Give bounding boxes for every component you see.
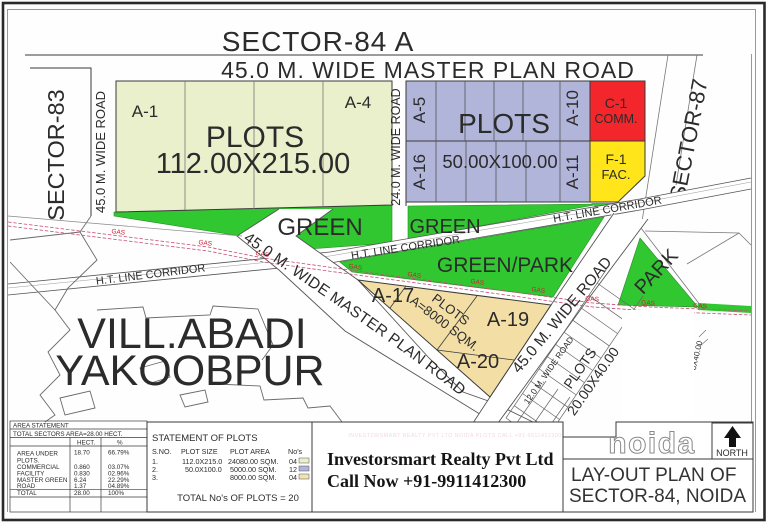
svg-text:A-11: A-11 [563, 155, 582, 190]
svg-text:INVESTORSMART REALTY PVT LTD: INVESTORSMART REALTY PVT LTD NOIDA PLOTS… [348, 433, 561, 439]
svg-text:A-4: A-4 [345, 93, 371, 112]
svg-text:SECTOR-84, NOIDA: SECTOR-84, NOIDA [569, 486, 746, 507]
svg-text:C-1: C-1 [605, 95, 628, 111]
svg-text:PLOTS: PLOTS [458, 108, 550, 139]
svg-text:FAC.: FAC. [602, 167, 631, 182]
svg-text:NORTH: NORTH [716, 448, 748, 458]
svg-text:A-10: A-10 [563, 90, 582, 126]
svg-text:8000.00 SQM.: 8000.00 SQM. [230, 473, 276, 482]
svg-text:45.0 M. WIDE ROAD: 45.0 M. WIDE ROAD [93, 91, 108, 213]
svg-text:PLOT AREA: PLOT AREA [230, 447, 270, 456]
svg-text:04.89%: 04.89% [108, 483, 130, 490]
svg-text:GREEN: GREEN [277, 214, 362, 241]
svg-text:A-1: A-1 [132, 102, 158, 121]
svg-text:100%: 100% [108, 490, 125, 497]
svg-text:F-1: F-1 [606, 151, 627, 167]
svg-text:24.0 M. WIDE ROAD: 24.0 M. WIDE ROAD [389, 88, 403, 205]
svg-text:04: 04 [289, 473, 297, 482]
svg-text:noida: noida [608, 427, 696, 460]
svg-text:66.79%: 66.79% [108, 450, 130, 457]
svg-text:TOTAL SECTORS AREA=28.00 HECT.: TOTAL SECTORS AREA=28.00 HECT. [13, 431, 123, 438]
svg-text:S.NO.: S.NO. [152, 447, 172, 456]
svg-text:TOTAL: TOTAL [17, 490, 37, 497]
svg-text:HECT.: HECT. [77, 440, 95, 447]
svg-text:YAKOOBPUR: YAKOOBPUR [55, 347, 324, 395]
svg-text:A-20: A-20 [457, 351, 499, 373]
svg-text:GAS: GAS [641, 300, 656, 308]
svg-text:%: % [117, 440, 123, 447]
svg-text:50.00X100.00: 50.00X100.00 [442, 151, 557, 172]
svg-text:GREEN/PARK: GREEN/PARK [437, 254, 573, 277]
svg-text:3.: 3. [152, 473, 158, 482]
svg-text:45.0 M. WIDE MASTER PLAN ROAD: 45.0 M. WIDE MASTER PLAN ROAD [221, 57, 635, 83]
svg-text:18.70: 18.70 [74, 450, 90, 457]
svg-text:SECTOR-83: SECTOR-83 [43, 89, 69, 220]
svg-text:ROAD: ROAD [17, 483, 36, 490]
svg-text:TOTAL No's OF PLOTS = 20: TOTAL No's OF PLOTS = 20 [177, 493, 299, 504]
svg-text:Call Now +91-9911412300: Call Now +91-9911412300 [327, 471, 526, 491]
svg-text:A-5: A-5 [410, 97, 429, 123]
svg-text:PLOT SIZE: PLOT SIZE [181, 447, 218, 456]
svg-text:A-16: A-16 [410, 154, 429, 190]
svg-text:COMM.: COMM. [594, 112, 637, 126]
svg-text:A-19: A-19 [487, 309, 529, 331]
svg-text:LAY-OUT PLAN OF: LAY-OUT PLAN OF [571, 465, 736, 486]
svg-text:AREA STATEMENT: AREA STATEMENT [13, 423, 69, 430]
svg-text:Investorsmart Realty Pvt Ltd: Investorsmart Realty Pvt Ltd [327, 449, 553, 469]
svg-text:SECTOR-84 A: SECTOR-84 A [222, 26, 415, 57]
svg-text:STATEMENT OF PLOTS: STATEMENT OF PLOTS [152, 433, 258, 444]
svg-text:50.0X100.0: 50.0X100.0 [185, 465, 222, 474]
svg-text:GAS: GAS [693, 303, 708, 310]
svg-text:AREA UNDER: AREA UNDER [17, 451, 58, 458]
svg-text:No's: No's [288, 447, 303, 456]
svg-text:112.00X215.00: 112.00X215.00 [156, 148, 351, 180]
svg-text:1.37: 1.37 [74, 483, 87, 490]
svg-text:GREEN: GREEN [409, 216, 480, 238]
svg-text:28.00: 28.00 [74, 490, 90, 497]
